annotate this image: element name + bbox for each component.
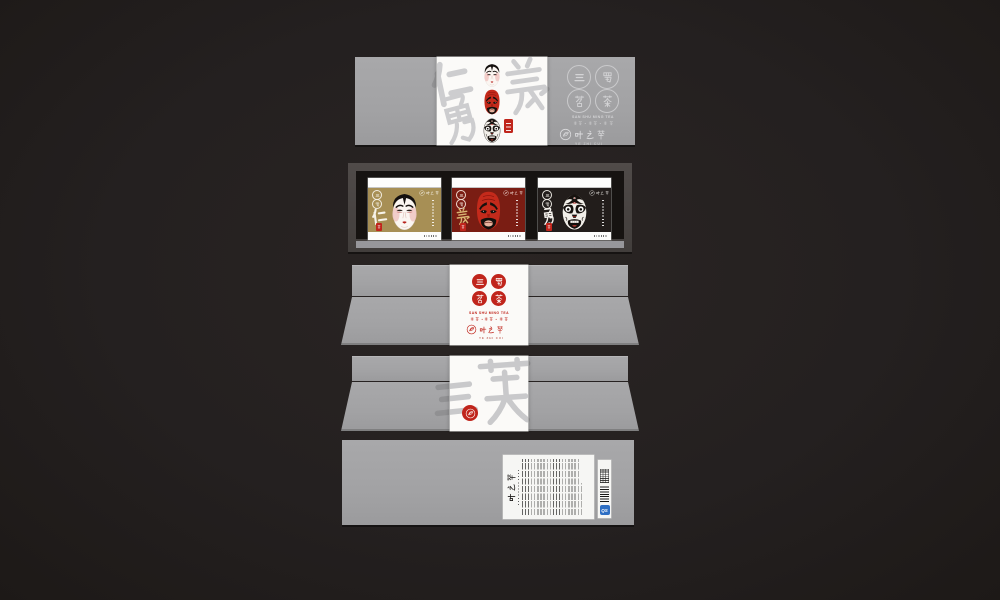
tea-box-yong: [538, 178, 611, 240]
box-logo: [589, 190, 609, 196]
series-name-en: SAN SHU MING TEA: [450, 311, 528, 315]
box-base-band: [538, 232, 611, 240]
packaging-mockup-canvas: SAN SHU MING TEA YE ZHI CUI: [0, 0, 1000, 600]
box-lid-band: [368, 178, 441, 188]
tray-front-edge: [356, 241, 624, 248]
box-logo: [419, 190, 439, 196]
panel-lid-top: SAN SHU MING TEA YE ZHI CUI: [355, 57, 635, 145]
box-lid-band: [452, 178, 525, 188]
guanyu-opera-mask-icon: [481, 88, 503, 116]
chop-seal: [546, 223, 552, 231]
chop-seal: [376, 223, 382, 231]
bottom-brand-subline: [518, 469, 519, 505]
yezhicui-emblem-icon: [466, 324, 477, 335]
panel-sleeve-front: SAN SHU MING TEA YE ZHI CUI: [341, 265, 639, 345]
seal-shu: [491, 274, 506, 289]
bottom-info-label: [503, 455, 594, 519]
brand-chop-seal: [462, 405, 478, 421]
box-vertical-text: [602, 199, 604, 226]
seal-ming: [567, 89, 591, 113]
license-text-block: [600, 469, 609, 483]
box-logo: [503, 190, 523, 196]
sleeve-back-strip: [450, 356, 528, 431]
qs-mark-icon: QS: [600, 505, 610, 515]
liubei-opera-mask-icon: [388, 189, 421, 232]
tea-types-line: [555, 121, 631, 126]
panel-sleeve-back: [341, 356, 639, 431]
lid-center-strip: [437, 57, 547, 145]
box-vertical-text: [432, 199, 434, 226]
yezhicui-emblem-icon: [589, 190, 595, 196]
yezhicui-emblem-icon: [503, 190, 509, 196]
yezhicui-emblem-icon: [419, 190, 425, 196]
barcode-icon: [600, 486, 609, 502]
fine-print-fade: [580, 459, 591, 483]
box-base-band: [368, 232, 441, 240]
series-name-en: SAN SHU MING TEA: [555, 115, 631, 119]
box-face-ren: [368, 188, 441, 232]
sleeve-front-strip: SAN SHU MING TEA YE ZHI CUI: [450, 265, 528, 345]
tea-box-ren: [368, 178, 441, 240]
qs-mark-label: QS: [601, 508, 608, 513]
brand-name-en: YE ZHI CUI: [479, 336, 504, 340]
yezhicui-logo: [466, 324, 504, 335]
liubei-opera-mask-icon: [481, 61, 503, 88]
seal-shu: [595, 65, 619, 89]
seal-san: [567, 65, 591, 89]
back-watermark-light: [450, 358, 528, 430]
tea-box-yi: [452, 178, 525, 240]
box-face-yong: [538, 188, 611, 232]
box-face-yi: [452, 188, 525, 232]
tea-types-line: [450, 317, 528, 321]
product-fine-print: [522, 459, 584, 515]
box-lid-band: [538, 178, 611, 188]
zhangfei-opera-mask-icon: [480, 115, 504, 144]
bottom-barcode-label: QS: [598, 460, 611, 518]
lid-brand-block: SAN SHU MING TEA YE ZHI CUI: [555, 63, 631, 143]
bottom-brand-title: [505, 461, 517, 513]
zhangfei-opera-mask-icon: [558, 189, 591, 232]
seal-cha: [491, 291, 506, 306]
brand-name-en: YE ZHI CUI: [575, 142, 603, 146]
yezhicui-logo: [559, 128, 606, 141]
seal-ming: [472, 291, 487, 306]
panel-box-bottom: QS: [342, 440, 634, 525]
box-vertical-text: [516, 199, 518, 226]
box-base-band: [452, 232, 525, 240]
yezhicui-emblem-icon: [465, 408, 476, 419]
chop-seal: [460, 223, 466, 231]
gift-tab-seal: [504, 119, 513, 133]
panel-tray: [348, 163, 632, 252]
seal-cha: [595, 89, 619, 113]
guanyu-opera-mask-icon: [472, 189, 505, 232]
seal-san: [472, 274, 487, 289]
yezhicui-emblem-icon: [559, 128, 572, 141]
